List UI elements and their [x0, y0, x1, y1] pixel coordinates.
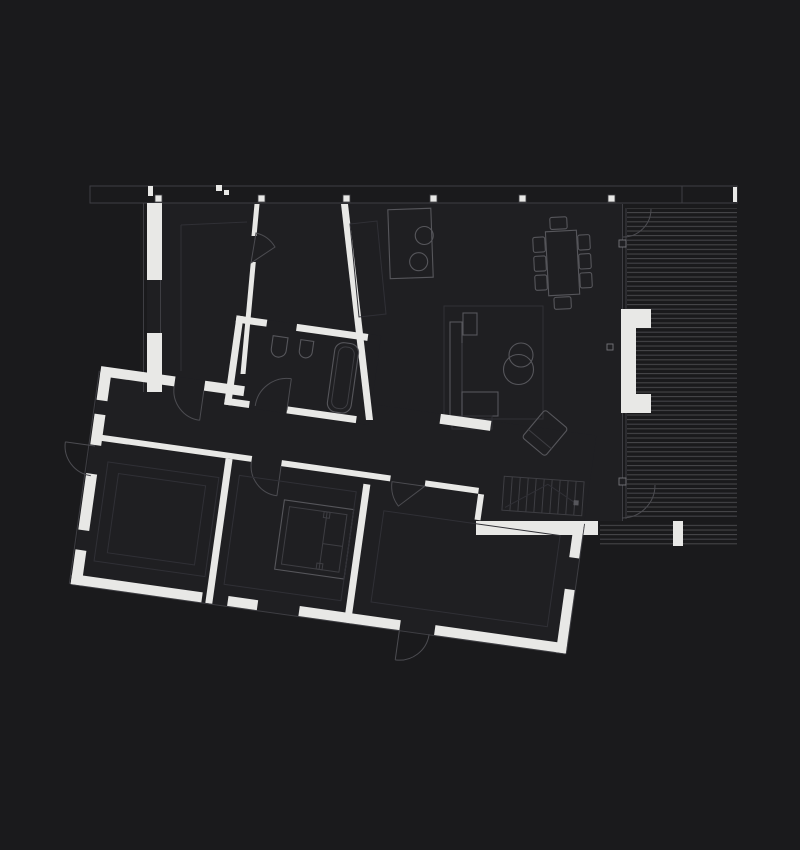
band-corner-glyph [216, 185, 222, 191]
band-column-marker [430, 195, 437, 202]
band-column-marker [343, 195, 350, 202]
band-column-marker [608, 195, 615, 202]
facade-mullion-marker [607, 344, 613, 350]
facade-mullion-marker [619, 478, 626, 485]
floor-plan-drawing [0, 0, 800, 850]
band-column-marker [155, 195, 162, 202]
band-tick [148, 186, 153, 196]
band-column-marker [519, 195, 526, 202]
deck-plank-hatching [627, 208, 737, 519]
deck-step-block [673, 521, 683, 546]
band-corner-glyph [224, 190, 229, 195]
floor-plan-page [0, 0, 800, 850]
stair-direction-marker [573, 500, 578, 505]
band-column-marker [258, 195, 265, 202]
facade-mullion-marker [619, 240, 626, 247]
deck-plank-hatching-lower [600, 523, 737, 545]
band-tick [733, 187, 737, 202]
